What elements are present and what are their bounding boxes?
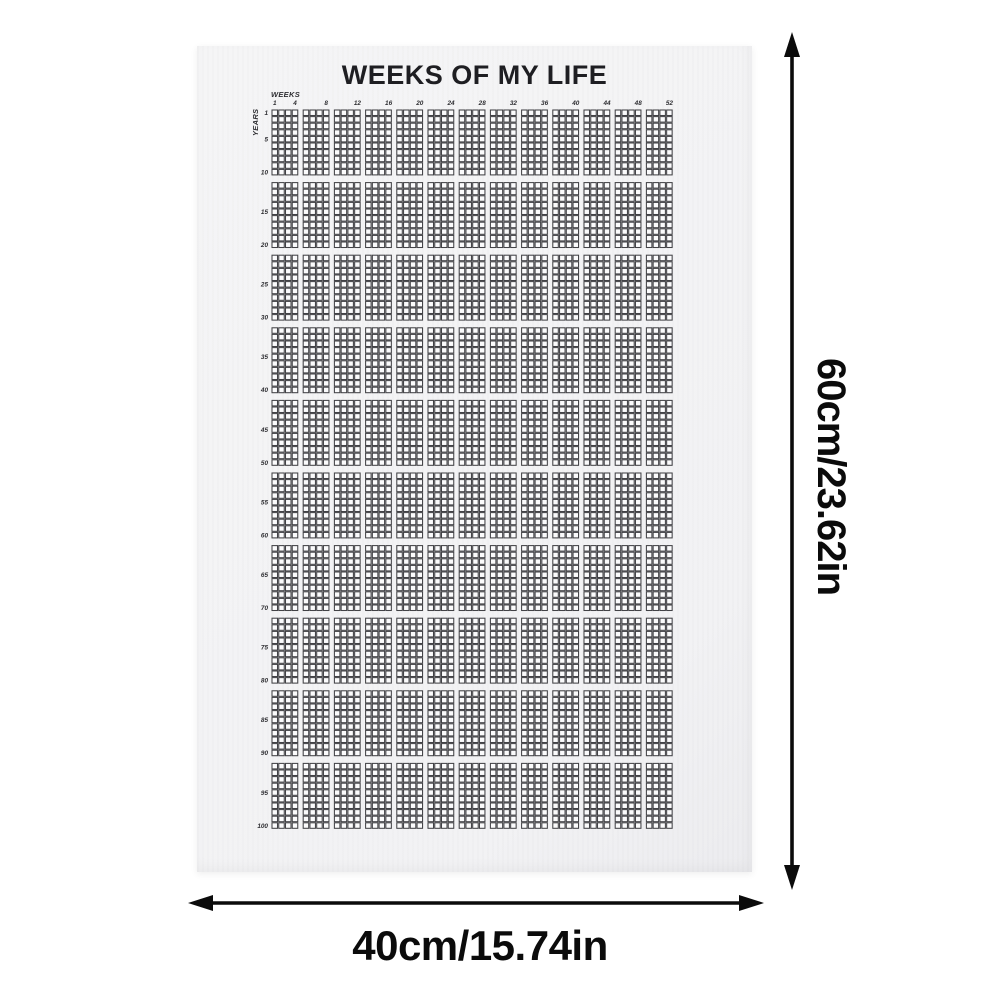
poster-title: WEEKS OF MY LIFE — [197, 60, 752, 91]
life-calendar-poster: WEEKS OF MY LIFE WEEKS YEARS 14812162024… — [197, 46, 752, 872]
width-arrow-icon — [186, 888, 766, 918]
weeks-of-life-grid: 1481216202428323640444852151015202530354… — [237, 88, 687, 838]
height-arrow-icon — [776, 30, 808, 892]
height-dimension-label: 60cm/23.62in — [808, 358, 854, 595]
product-dimension-diagram: WEEKS OF MY LIFE WEEKS YEARS 14812162024… — [0, 0, 1000, 1000]
width-dimension-label: 40cm/15.74in — [190, 922, 770, 970]
